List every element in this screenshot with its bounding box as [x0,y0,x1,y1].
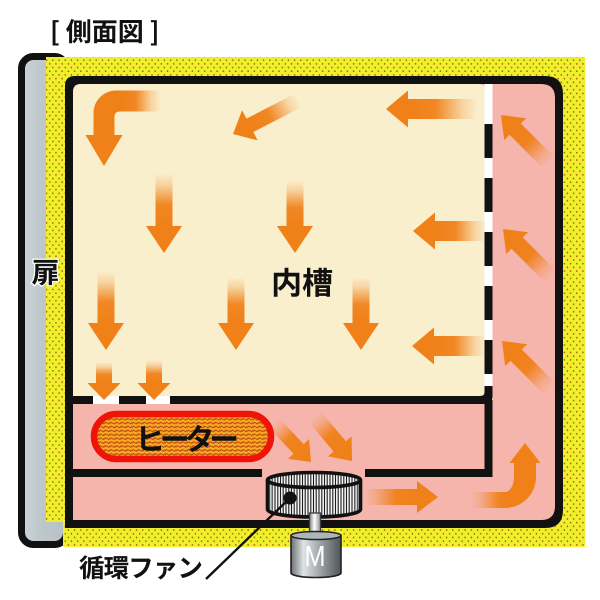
svg-text:M: M [305,541,326,573]
